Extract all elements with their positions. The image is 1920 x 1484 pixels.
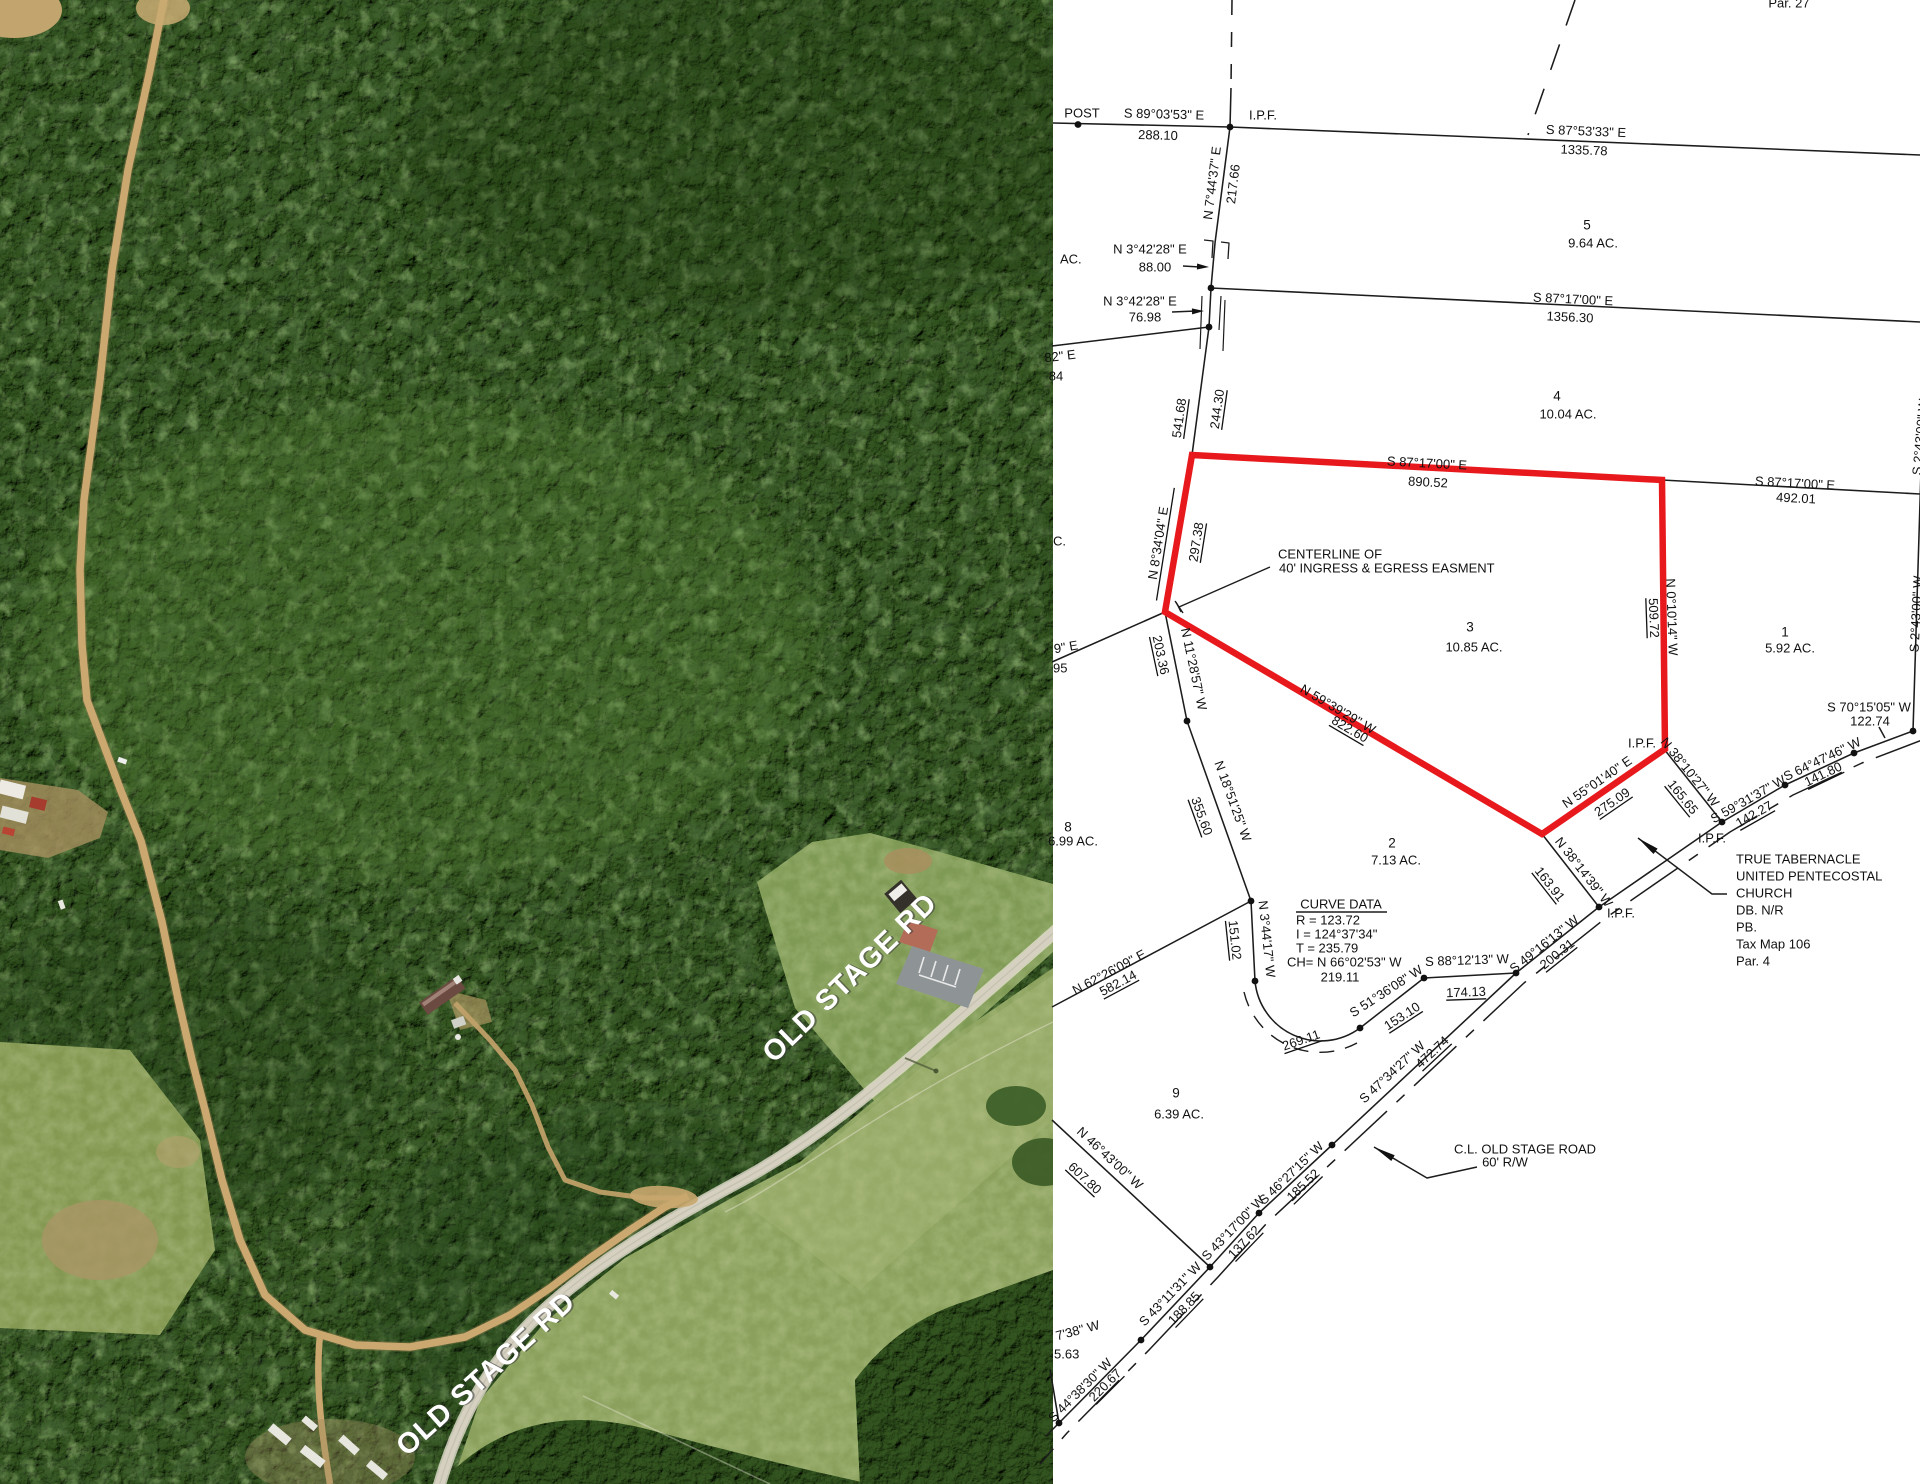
- svg-text:122.74: 122.74: [1850, 714, 1890, 729]
- svg-text:174.13: 174.13: [1446, 984, 1486, 1000]
- svg-text:UNITED PENTECOSTAL: UNITED PENTECOSTAL: [1736, 869, 1882, 884]
- svg-text:S 70°15'05" W: S 70°15'05" W: [1827, 700, 1912, 715]
- svg-text:Par. 27: Par. 27: [1768, 0, 1809, 11]
- svg-text:N 3°42'28" E: N 3°42'28" E: [1103, 294, 1177, 309]
- svg-text:2: 2: [1388, 836, 1396, 851]
- svg-text:Par. 4: Par. 4: [1736, 954, 1770, 969]
- svg-text:288.10: 288.10: [1138, 127, 1178, 143]
- svg-text:219.11: 219.11: [1321, 970, 1360, 985]
- svg-text:3: 3: [1466, 620, 1474, 635]
- svg-text:C.: C.: [1053, 534, 1066, 549]
- svg-text:N 0°10'14" W: N 0°10'14" W: [1663, 578, 1681, 657]
- svg-text:1335.78: 1335.78: [1560, 142, 1608, 159]
- svg-text:10.04 AC.: 10.04 AC.: [1539, 407, 1596, 422]
- svg-text:I.P.F.: I.P.F.: [1628, 736, 1656, 751]
- svg-text:S 88°12'13" W: S 88°12'13" W: [1425, 951, 1510, 969]
- svg-text:7.13 AC.: 7.13 AC.: [1371, 853, 1421, 868]
- svg-text:CHURCH: CHURCH: [1736, 886, 1792, 901]
- svg-text:9.64 AC.: 9.64 AC.: [1568, 236, 1618, 251]
- svg-text:TRUE TABERNACLE: TRUE TABERNACLE: [1736, 852, 1861, 867]
- svg-text:8: 8: [1064, 820, 1072, 835]
- svg-text:CURVE DATA: CURVE DATA: [1300, 897, 1382, 912]
- svg-text:1356.30: 1356.30: [1546, 308, 1594, 325]
- svg-text:88.00: 88.00: [1139, 260, 1172, 275]
- svg-text:I.P.F.: I.P.F.: [1249, 108, 1277, 123]
- svg-text:10.85 AC.: 10.85 AC.: [1445, 640, 1502, 655]
- svg-text:5.92 AC.: 5.92 AC.: [1765, 641, 1815, 656]
- svg-text:CH= N 66°02'53" W: CH= N 66°02'53" W: [1287, 955, 1402, 970]
- svg-text:AC.: AC.: [1060, 252, 1082, 267]
- svg-text:9: 9: [1172, 1086, 1180, 1101]
- svg-text:84: 84: [1049, 369, 1063, 384]
- svg-text:5.63: 5.63: [1054, 1347, 1079, 1362]
- svg-text:Tax Map 106: Tax Map 106: [1736, 937, 1810, 952]
- svg-text:1: 1: [1781, 625, 1789, 640]
- svg-text:60' R/W: 60' R/W: [1482, 1155, 1529, 1170]
- svg-text:509.72: 509.72: [1646, 598, 1662, 638]
- svg-text:I.P.F.: I.P.F.: [1698, 831, 1726, 846]
- svg-text:POST: POST: [1064, 106, 1099, 121]
- svg-text:76.98: 76.98: [1129, 310, 1162, 325]
- svg-text:4: 4: [1553, 389, 1561, 404]
- svg-text:492.01: 492.01: [1776, 489, 1816, 506]
- svg-text:I.P.F.: I.P.F.: [1607, 906, 1635, 921]
- svg-text:5: 5: [1583, 218, 1591, 233]
- svg-text:6.99 AC.: 6.99 AC.: [1048, 834, 1098, 849]
- svg-text:DB. N/R: DB. N/R: [1736, 903, 1784, 918]
- svg-text:CENTERLINE OF: CENTERLINE OF: [1278, 547, 1382, 562]
- svg-text:R = 123.72: R = 123.72: [1296, 913, 1360, 928]
- svg-text:N 3°42'28" E: N 3°42'28" E: [1113, 242, 1187, 257]
- svg-text:S 89°03'53" E: S 89°03'53" E: [1124, 105, 1205, 122]
- svg-text:I = 124°37'34": I = 124°37'34": [1296, 927, 1378, 942]
- svg-text:T = 235.79: T = 235.79: [1296, 941, 1358, 956]
- svg-text:95: 95: [1053, 661, 1067, 676]
- svg-text:6.39 AC.: 6.39 AC.: [1154, 1107, 1204, 1122]
- svg-text:890.52: 890.52: [1408, 473, 1448, 490]
- svg-text:PB.: PB.: [1736, 920, 1757, 935]
- svg-text:40' INGRESS & EGRESS EASMENT: 40' INGRESS & EGRESS EASMENT: [1279, 561, 1495, 576]
